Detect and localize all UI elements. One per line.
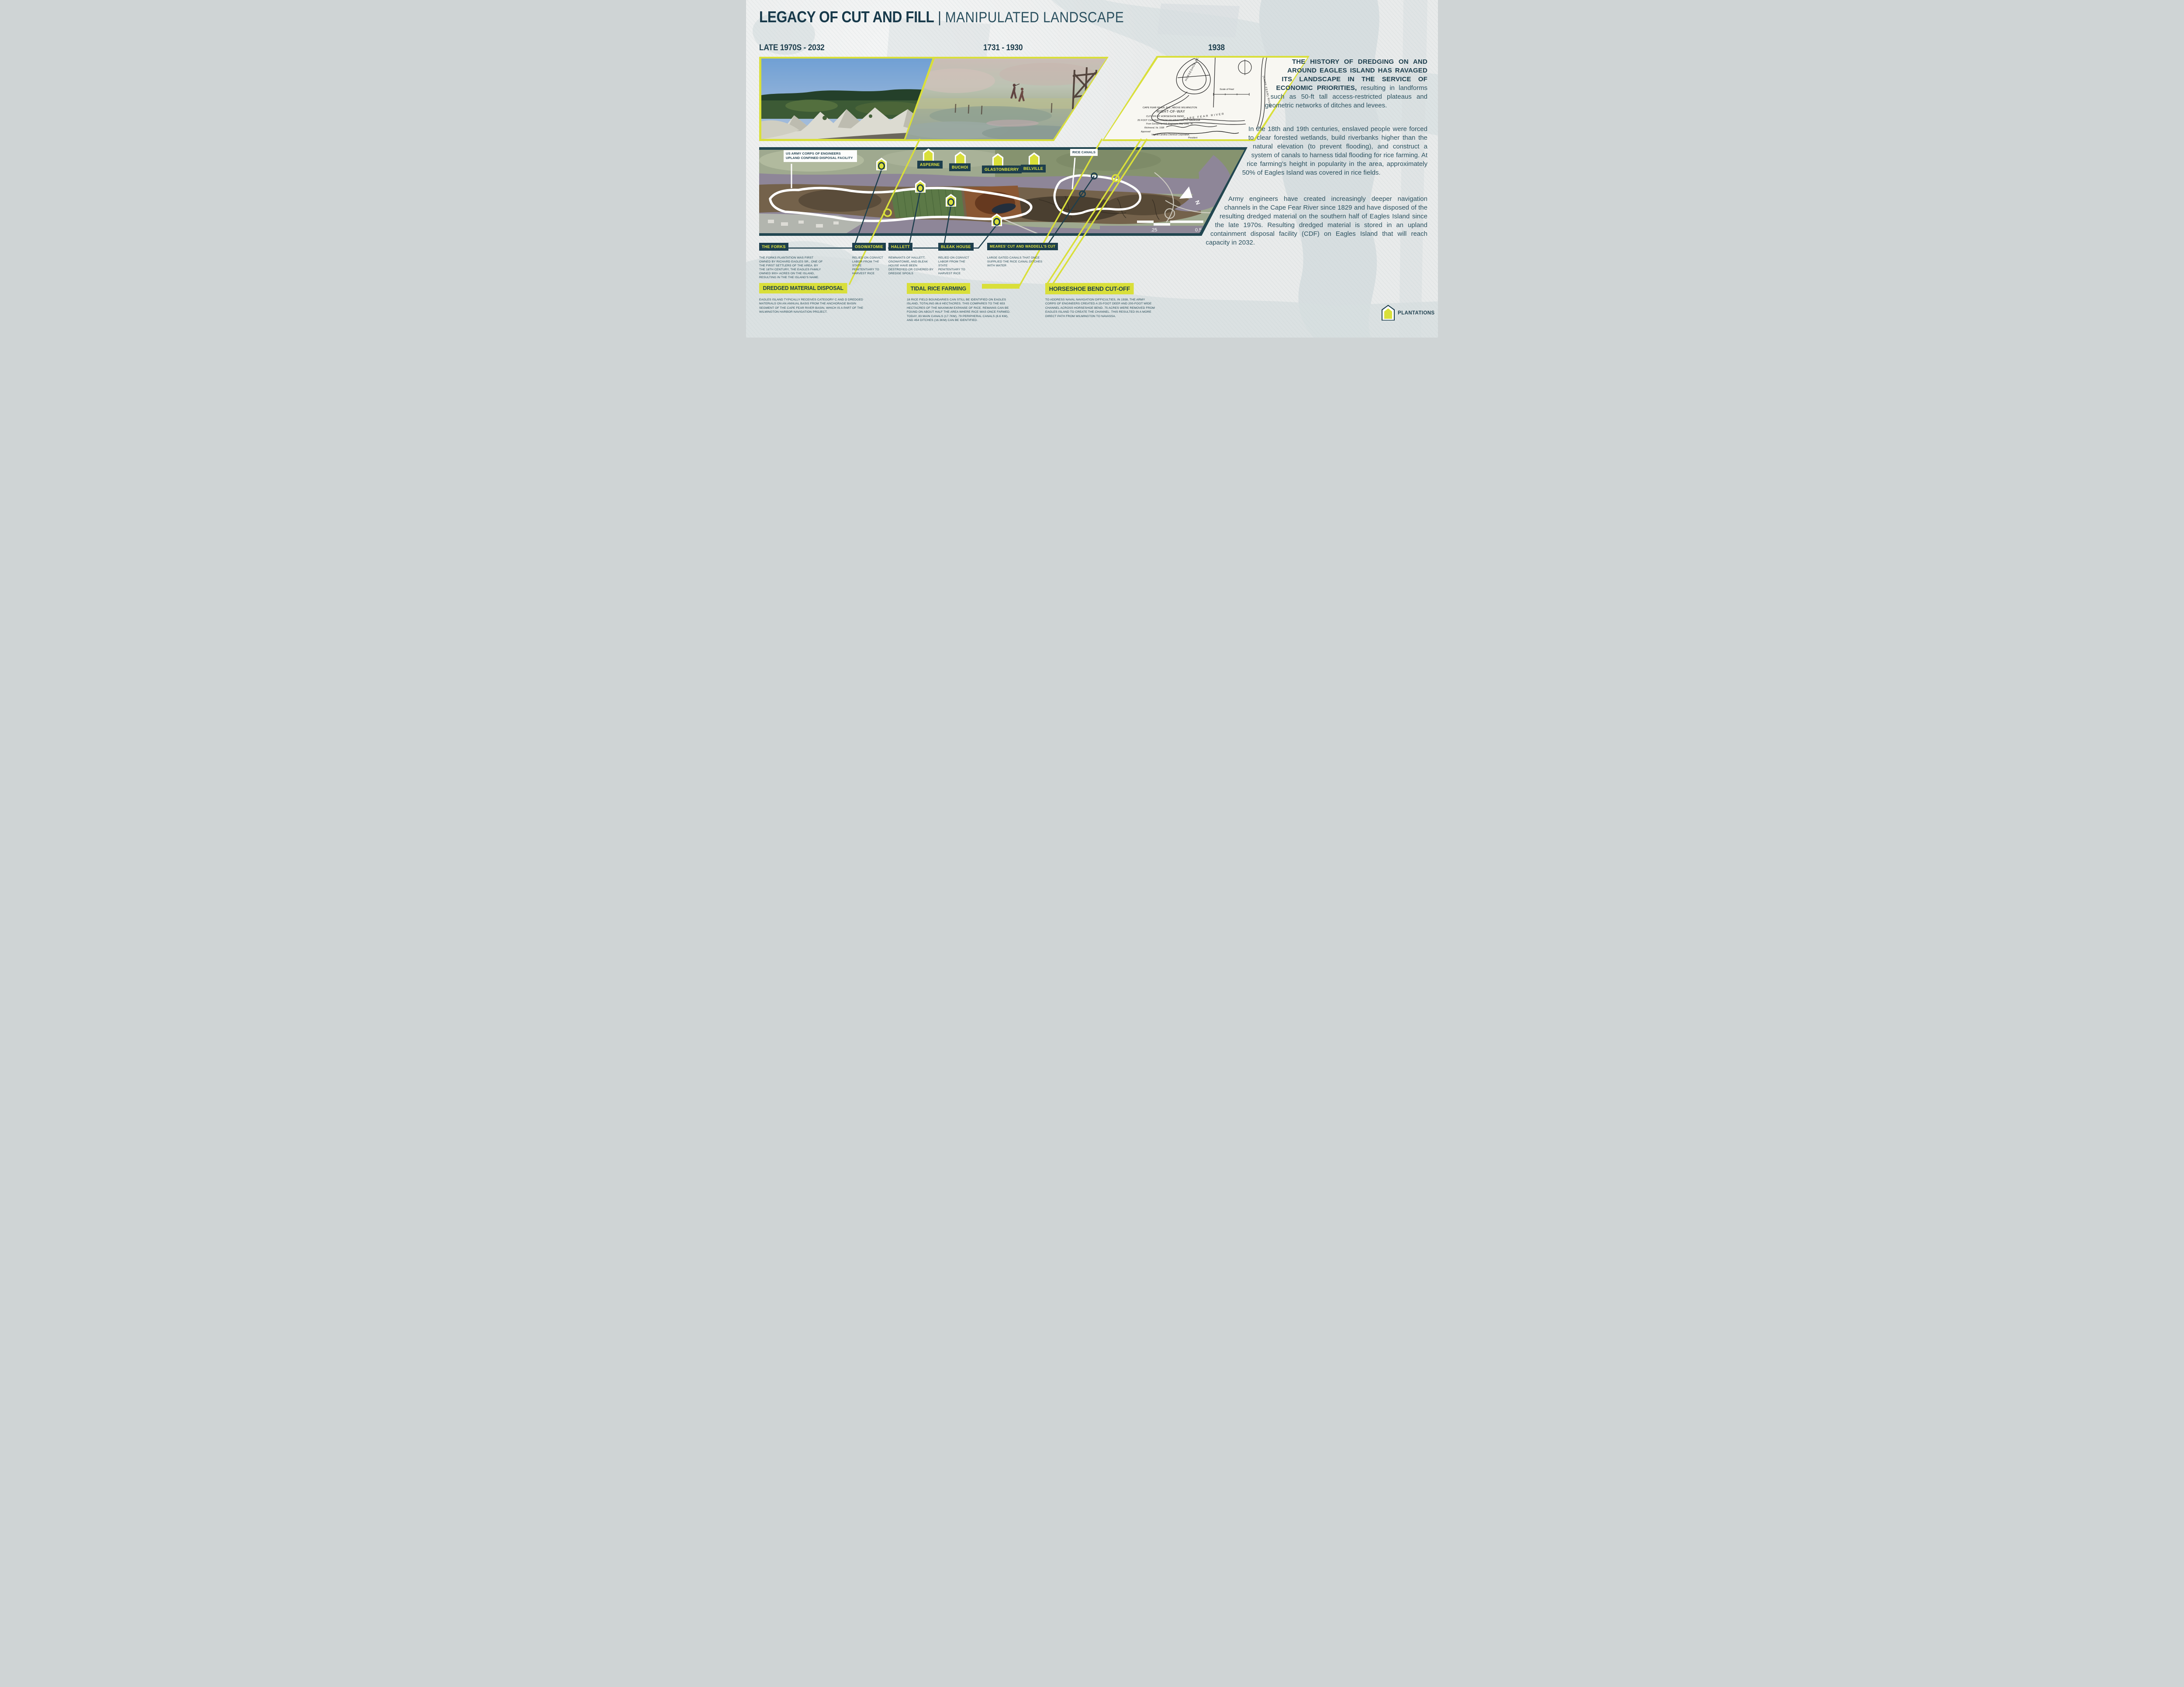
- page-title: LEGACY OF CUT AND FILL|MANIPULATED LANDS…: [759, 8, 1124, 26]
- section-heading-dredged-disposal: DREDGED MATERIAL DISPOSAL: [759, 283, 847, 293]
- title-secondary: MANIPULATED LANDSCAPE: [945, 9, 1124, 26]
- town-label-asperne: ASPERNE: [917, 161, 943, 169]
- section-body-tidal-rice: 18 RICE FIELD BOUNDARIES CAN STILL BE ID…: [907, 298, 1013, 322]
- tidal-rice-connector-bar: [982, 284, 1019, 289]
- svg-text:Richmond, Va. 1938: Richmond, Va. 1938: [1144, 127, 1164, 129]
- plantation-pin-hallett: [946, 194, 956, 207]
- plantation-pin-bleak-house: [992, 214, 1002, 226]
- svg-text:From Surveys by U.S. Engineers: From Surveys by U.S. Engineers, May-June…: [1146, 123, 1193, 125]
- section-body-horseshoe-cutoff: TO ADDRESS NAVAL NAVIGATION DIFFICULTIES…: [1045, 298, 1155, 318]
- callout-body-meares-cut: LARGE GATED CANALS THAT ONCE SUPPLIED TH…: [987, 256, 1048, 268]
- legend-plantations-label: PLANTATIONS: [1398, 310, 1434, 316]
- callout-label-hallett: HALLETT: [888, 243, 912, 251]
- section-heading-tidal-rice: TIDAL RICE FARMING: [907, 283, 970, 294]
- narrative-paragraph-1: THE HISTORY OF DREDGING ON AND AROUND EA…: [1248, 58, 1427, 114]
- svg-text:RIGHT-OF-WAY: RIGHT-OF-WAY: [1157, 110, 1185, 114]
- poster-legacy-of-cut-and-fill: LEGACY OF CUT AND FILL|MANIPULATED LANDS…: [746, 0, 1438, 338]
- narrative-paragraph-3: Army engineers have created increasingly…: [1199, 195, 1427, 243]
- scale-first: .25: [1151, 228, 1157, 233]
- plantation-pin-the-forks: [876, 158, 887, 170]
- callout-body-hallett: REMNANTS OF HALLETT, OSOWATOMIE, AND BLE…: [888, 256, 934, 276]
- town-pin-buchoi: [955, 152, 966, 165]
- section-body-dredged-disposal: EAGLES ISLAND TYPICALLY RECEIVES CATEGOR…: [759, 298, 871, 314]
- svg-text:25 FOOT CHANNEL FROM WILMINGTO: 25 FOOT CHANNEL FROM WILMINGTON TO NAVAS…: [1137, 119, 1200, 122]
- timeline-era-rice: 1731 - 1930: [983, 43, 1023, 53]
- svg-text:Approved:: Approved:: [1140, 131, 1151, 133]
- timeline-era-cutoff: 1938: [1208, 43, 1225, 53]
- title-primary: LEGACY OF CUT AND FILL: [759, 8, 934, 26]
- callout-body-the-forks: THE FORKS PLANTATION WAS FIRST OWNED BY …: [759, 256, 825, 280]
- town-pin-asperne: [923, 148, 934, 162]
- narrative-paragraph-2: In the 18th and 19th centuries, enslaved…: [1209, 125, 1427, 191]
- callout-body-osowatomie: RELIED ON CONVICT LABOR FROM THE STATE P…: [852, 256, 884, 276]
- timeline-era-dredging: LATE 1970S - 2032: [759, 43, 824, 53]
- town-pin-glastonberry: [992, 153, 1003, 166]
- town-label-glastonberry: GLASTONBERRY: [982, 166, 1022, 173]
- town-label-belville: BELVILLE: [1021, 165, 1046, 172]
- callout-label-bleak-house: BLEAK HOUSE: [938, 243, 974, 251]
- svg-text:CAPE FEAR RIVER, N.C., ABOVE W: CAPE FEAR RIVER, N.C., ABOVE WILMINGTON: [1143, 107, 1197, 109]
- title-separator: |: [934, 9, 945, 26]
- callout-body-bleak-house: RELIED ON CONVICT LABOR FROM THE STATE P…: [938, 256, 970, 276]
- callout-label-osowatomie: OSOWATOMIE: [852, 243, 886, 251]
- map1938-scale-of-feet: Scale of Feet: [1220, 88, 1234, 91]
- rice-canals-label: RICE CANALS: [1070, 149, 1098, 156]
- svg-text:President: President: [1188, 137, 1198, 139]
- legend-plantation-icon: [1382, 305, 1395, 321]
- town-label-buchoi: BUCHOI: [949, 163, 971, 171]
- narrative-p3: Army engineers have created increasingly…: [1199, 195, 1427, 247]
- plantation-pin-osowatomie: [915, 180, 926, 193]
- painting-rice-farming: [903, 57, 1111, 142]
- callout-label-meares-cut: MEARES’ CUT AND WADDELL’S CUT: [987, 243, 1058, 250]
- svg-text:CUT-OFF AT HORSESHOE BEND: CUT-OFF AT HORSESHOE BEND: [1146, 115, 1184, 118]
- cdf-facility-label: US ARMY CORPS OF ENGINEERS UPLAND CONFIN…: [784, 150, 857, 162]
- town-pin-belville: [1029, 152, 1040, 166]
- callout-label-the-forks: THE FORKS: [759, 243, 788, 251]
- section-heading-horseshoe-cutoff: HORSESHOE BEND CUT-OFF: [1045, 283, 1134, 294]
